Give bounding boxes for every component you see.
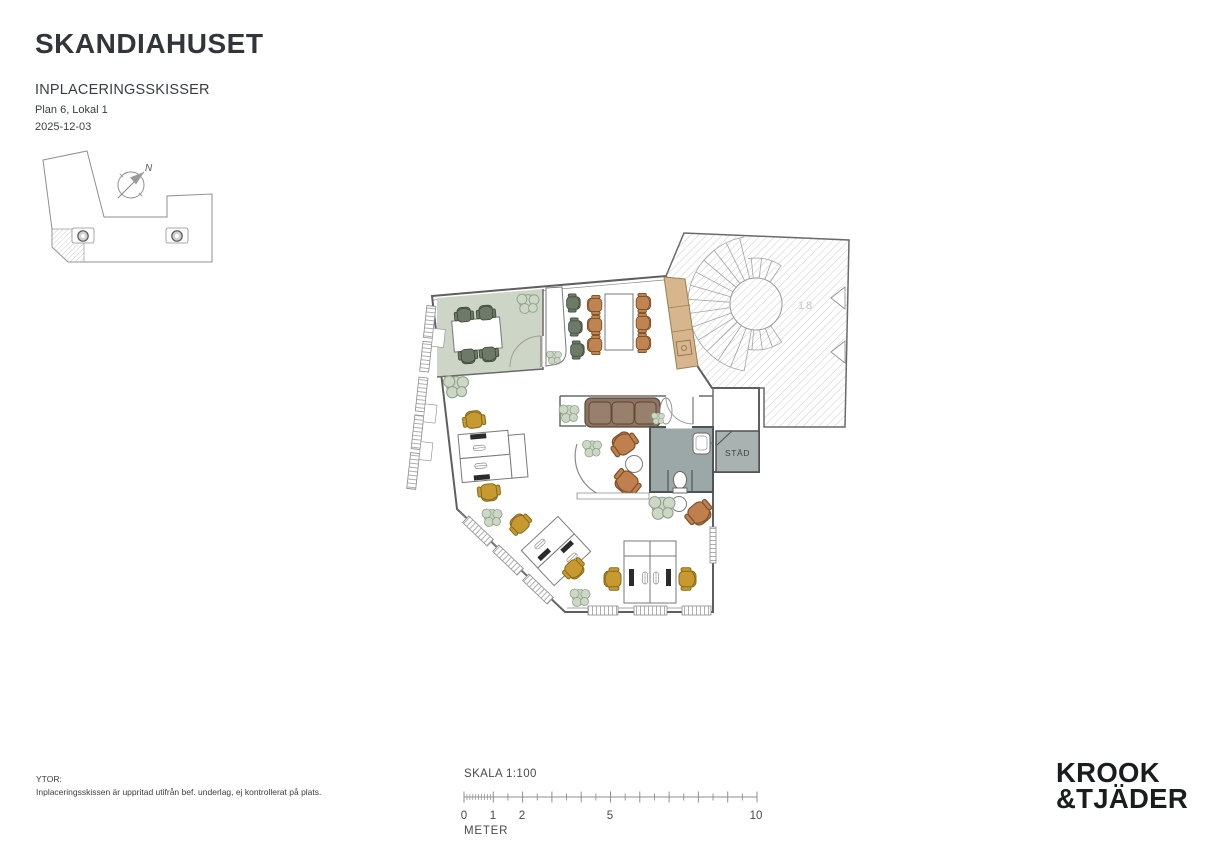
lounge-table (626, 456, 643, 473)
scale-title: SKALA 1:100 (464, 768, 537, 780)
logo-line-2: &TJÄDER (1056, 786, 1188, 812)
monitor (629, 569, 634, 586)
scale-tick-1: 1 (479, 810, 507, 822)
scale-tick-10: 10 (742, 810, 770, 822)
sheet-subtitle: INPLACERINGSSKISSER (35, 82, 210, 98)
plan-label: Plan 6, Lokal 1 (35, 104, 108, 116)
lokal-plan: 18 (407, 233, 849, 615)
areas-note-title: YTOR: (36, 773, 336, 786)
radiator-niche (423, 404, 437, 423)
left-wall-windows (407, 306, 448, 491)
sheet-date: 2025-12-03 (35, 121, 91, 133)
scale-tick-5: 5 (596, 810, 624, 822)
monitor (666, 569, 671, 586)
sink (693, 433, 713, 454)
stairwell-number-label: 18 (798, 300, 814, 312)
architect-logo: KROOK &TJÄDER (1056, 760, 1188, 812)
desk-group-left (458, 429, 528, 483)
north-label: N (145, 163, 153, 174)
key-plan-stair-core (166, 228, 188, 243)
low-cabinet (577, 493, 649, 499)
drawing-sheet: N 18 (0, 0, 1220, 863)
desk-group-right (624, 541, 676, 603)
meeting-table (452, 317, 503, 352)
areas-note: YTOR: Inplaceringsskissen är uppritad ut… (36, 773, 336, 799)
scale-bar (464, 792, 757, 803)
areas-note-body: Inplaceringsskissen är uppritad utifrån … (36, 787, 321, 797)
scale-tick-2: 2 (508, 810, 536, 822)
key-plan: N (43, 151, 212, 262)
wc-room (650, 427, 713, 493)
sheet-title: SKANDIAHUSET (35, 28, 263, 60)
north-arrow-icon: N (118, 163, 153, 198)
floor-plan-drawing: N 18 (0, 0, 1220, 863)
radiator-niche (431, 328, 445, 347)
radiator-niche (419, 442, 433, 461)
stad-room: STÄD (716, 431, 759, 472)
dining-table (605, 294, 633, 350)
key-plan-stair-core (72, 228, 94, 243)
scale-tick-0: 0 (450, 810, 478, 822)
scale-unit: METER (464, 825, 508, 837)
stad-label: STÄD (725, 448, 750, 458)
